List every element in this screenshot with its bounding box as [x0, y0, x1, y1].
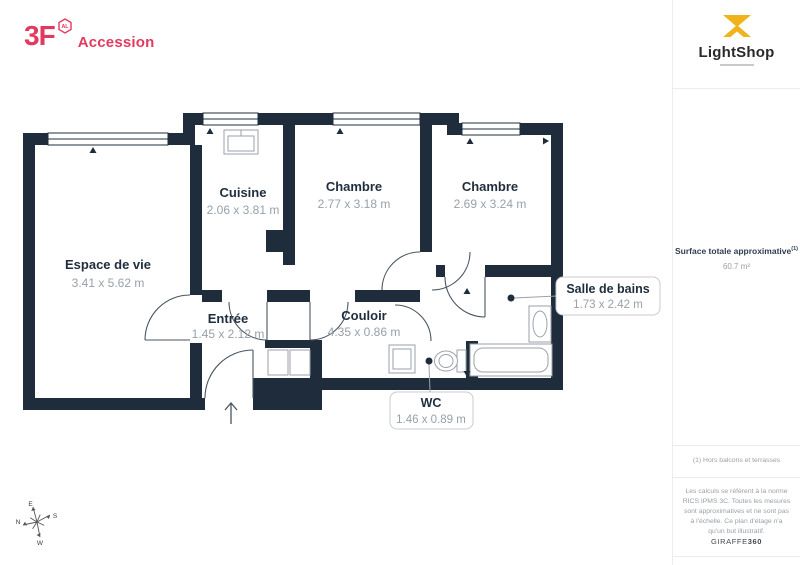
floorplan-page: 3F AL Accession: [0, 0, 800, 565]
room-dims-bedroom2: 2.69 x 3.24 m: [454, 197, 527, 211]
hall-end-door-arc: [382, 252, 420, 290]
compass-east-label: E: [28, 501, 33, 508]
room-dims-hallway: 4.35 x 0.86 m: [328, 325, 401, 339]
surface-total-value: 60.7 m²: [673, 262, 800, 271]
wc-marker-dot: [426, 358, 433, 365]
bathroom-door-arc: [445, 277, 485, 317]
sidebar-divider: [673, 88, 800, 89]
giraffe360-credit: GIRAFFE360: [673, 537, 800, 546]
sidebar-divider: [673, 556, 800, 557]
room-dims-entry: 1.45 x 2.12 m: [192, 327, 265, 341]
surface-total-block: Surface totale approximative(1) 60.7 m²: [673, 246, 800, 271]
room-label-hallway: Couloir: [341, 308, 387, 323]
room-label-entry: Entrée: [208, 311, 248, 326]
room-dims-bedroom1: 2.77 x 3.18 m: [318, 197, 391, 211]
front-door-arc: [205, 350, 253, 398]
surface-total-superscript: (1): [791, 246, 798, 252]
lightshop-logo-icon: [722, 14, 752, 38]
info-sidebar: LightShop Surface totale approximative(1…: [672, 0, 800, 565]
wc-door-arc: [395, 305, 431, 341]
disclaimer-text: Les calculs se réfèrent à la norme RICS …: [673, 487, 800, 537]
room-dims-kitchen: 2.06 x 3.81 m: [207, 203, 280, 217]
room-label-living: Espace de vie: [65, 257, 151, 272]
room-label-bedroom2: Chambre: [462, 179, 518, 194]
lightshop-logo: LightShop: [673, 14, 800, 66]
room-label-bedroom1: Chambre: [326, 179, 382, 194]
living-door-arc: [145, 295, 190, 340]
bathroom-marker-dot: [508, 295, 515, 302]
closet-icon: [290, 350, 310, 375]
closet-icon: [268, 350, 288, 375]
lightshop-tagline-text: [720, 64, 754, 66]
callout-dims-wc: 1.46 x 0.89 m: [396, 414, 466, 426]
compass-south-label: S: [53, 513, 58, 520]
callout-dims-bathroom: 1.73 x 2.42 m: [573, 299, 643, 311]
fixtures: [224, 130, 552, 376]
surface-total-label: Surface totale approximative: [675, 246, 791, 256]
sidebar-divider: [673, 477, 800, 478]
giraffe360-credit-number: 360: [748, 537, 762, 546]
room-dims-living: 3.41 x 5.62 m: [72, 276, 145, 290]
footnote-text: (1) Hors balcons et terrasses: [673, 457, 800, 464]
sidebar-divider: [673, 445, 800, 446]
entrance-arrow-icon: [225, 403, 237, 424]
compass-icon: E S N W: [16, 501, 58, 547]
room-labels: Espace de vie 3.41 x 5.62 m Cuisine 2.06…: [65, 179, 526, 341]
callout-label-wc: WC: [421, 396, 442, 410]
giraffe360-credit-name: GIRAFFE: [711, 537, 748, 546]
callout-label-bathroom: Salle de bains: [566, 282, 649, 296]
lightshop-name: LightShop: [673, 44, 800, 61]
floorplan-drawing: Espace de vie 3.41 x 5.62 m Cuisine 2.06…: [0, 0, 672, 565]
compass-north-label: N: [16, 519, 21, 526]
toilet-icon: [457, 350, 466, 372]
compass-west-label: W: [37, 540, 44, 547]
room-label-kitchen: Cuisine: [220, 185, 267, 200]
